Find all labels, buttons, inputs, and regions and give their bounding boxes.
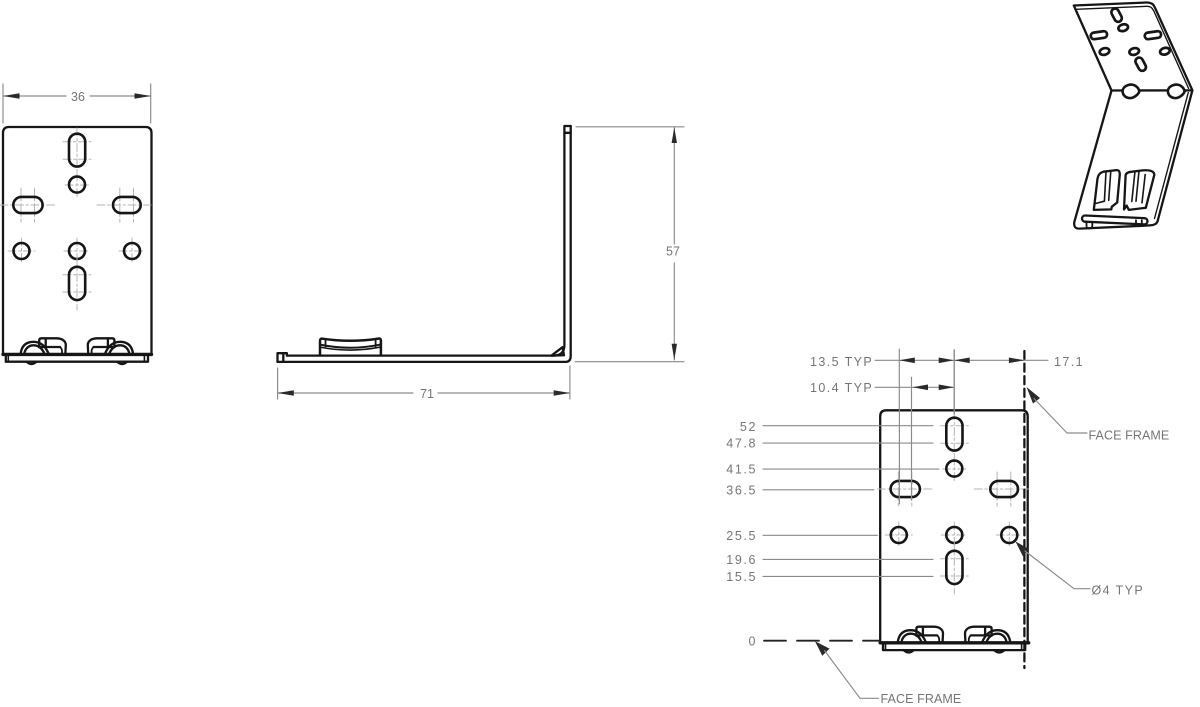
svg-text:25.5: 25.5 xyxy=(726,529,757,543)
svg-text:10.4 TYP: 10.4 TYP xyxy=(810,381,873,395)
svg-text:57: 57 xyxy=(666,245,680,259)
svg-text:Ø4 TYP: Ø4 TYP xyxy=(1092,584,1145,598)
svg-text:FACE FRAME: FACE FRAME xyxy=(881,692,962,706)
svg-text:36: 36 xyxy=(71,90,85,104)
svg-text:13.5 TYP: 13.5 TYP xyxy=(810,355,873,369)
svg-text:52: 52 xyxy=(740,420,757,434)
svg-text:19.6: 19.6 xyxy=(726,553,757,567)
svg-text:17.1: 17.1 xyxy=(1054,355,1084,369)
svg-text:FACE FRAME: FACE FRAME xyxy=(1089,429,1170,443)
svg-text:36.5: 36.5 xyxy=(726,483,757,497)
svg-text:41.5: 41.5 xyxy=(726,463,757,477)
svg-text:71: 71 xyxy=(420,387,434,401)
svg-text:15.5: 15.5 xyxy=(726,570,757,584)
svg-text:47.8: 47.8 xyxy=(726,436,757,450)
svg-text:0: 0 xyxy=(748,634,757,648)
